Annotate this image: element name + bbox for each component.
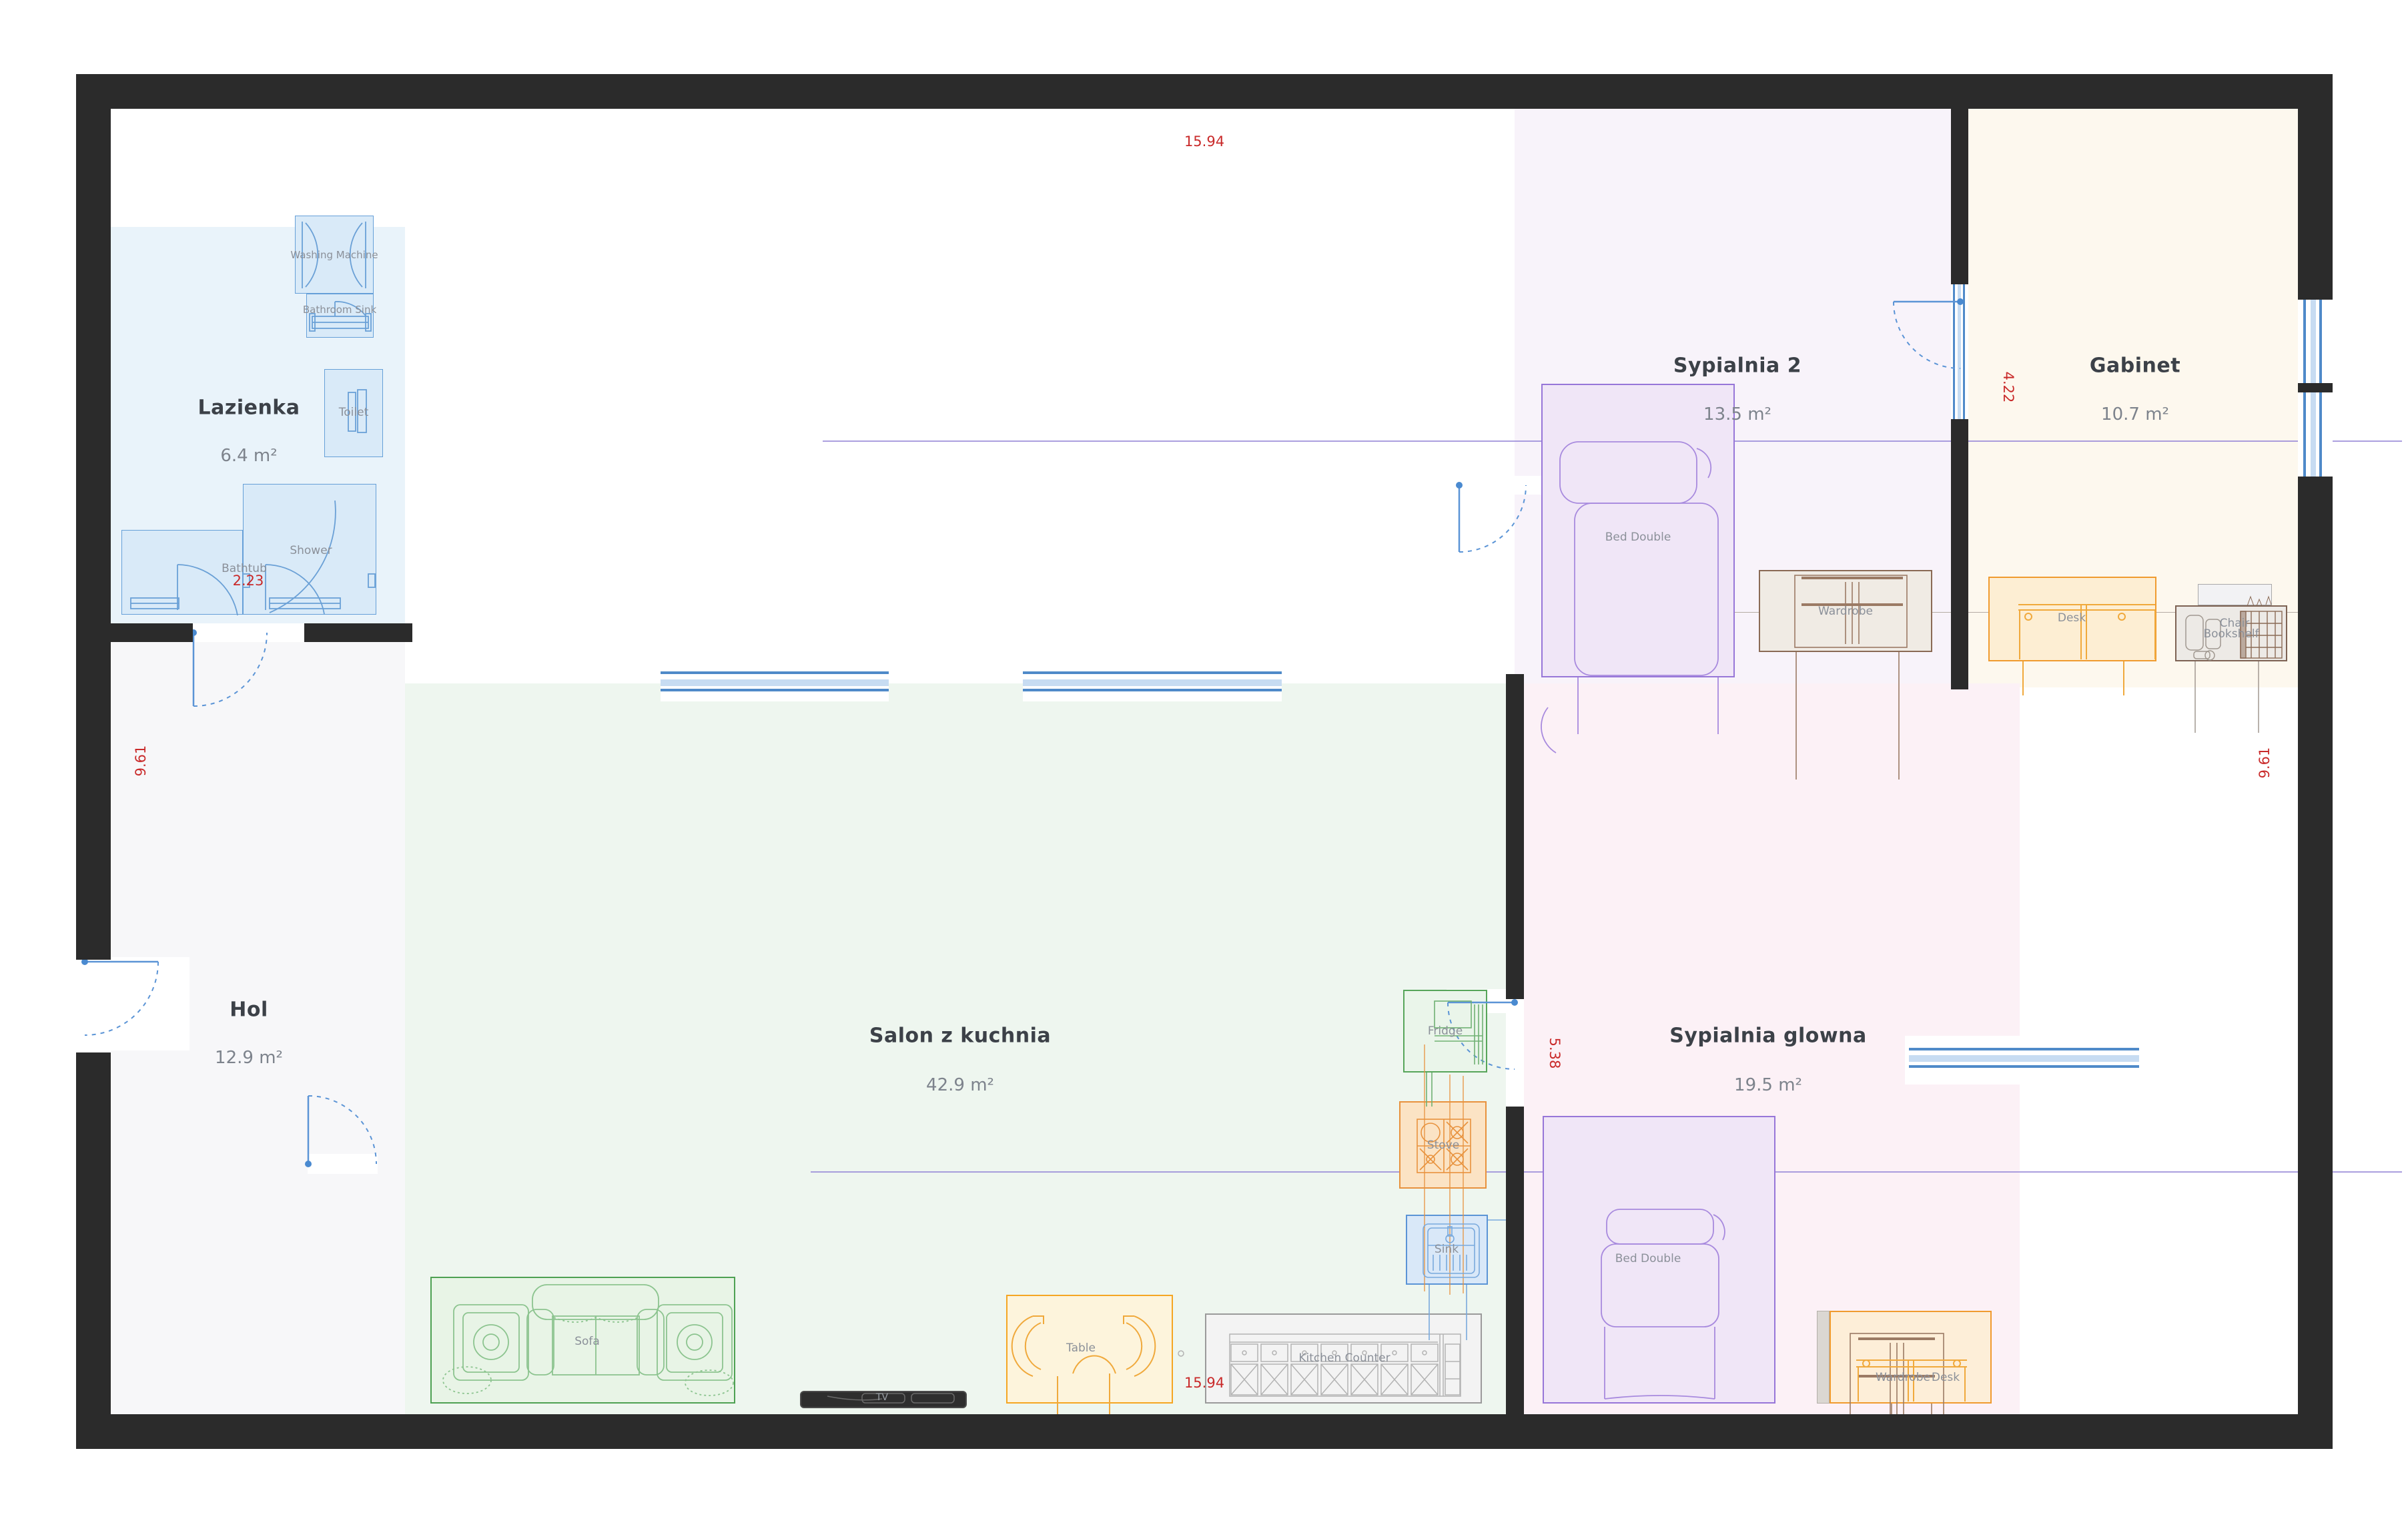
chair-gabinet[interactable] [2198,584,2272,605]
wall-bottom [76,1414,2333,1449]
window-pane [661,679,889,686]
wall-lazienka-right [304,623,412,642]
label-sink: Sink [1435,1243,1459,1256]
wall-left-lower [76,1052,111,1449]
room-title-lazienka: Lazienka [197,396,300,420]
wall-right-lower [2298,477,2333,1449]
window-pane [1909,1048,2139,1050]
window-pane [1963,284,1965,419]
bathroom-sink[interactable] [306,294,374,338]
dimension-lazienka: 2.23 [233,573,264,589]
wall-sypialnia2-gabinet-lower [1951,419,1968,689]
dimension-top: 15.94 [1184,133,1224,149]
wall-salon-sypialnia-lower [1506,1107,1524,1414]
window-pane [1023,679,1282,686]
floor-plan: Lazienka 6.4 m² Hol 12.9 m² Salon z kuch… [0,0,2408,1525]
window-pane [1023,689,1282,691]
dimension-salon: 5.38 [1547,1038,1563,1069]
label-fridge: Fridge [1428,1024,1463,1038]
room-area-gabinet: 10.7 m² [2101,404,2169,424]
wall-right-upper [2298,74,2333,300]
wardrobe-desk-combo[interactable] [1830,1311,1992,1404]
room-area-lazienka: 6.4 m² [220,446,277,466]
wardrobe-side-panel[interactable] [1817,1311,1830,1404]
window-pane [1958,284,1961,419]
label-desk-glowna: Desk [1932,1371,1960,1384]
window-pane [1953,284,1955,419]
window-sypialnia2-gabinet[interactable] [1951,284,1968,419]
label-table: Table [1066,1341,1096,1355]
dimension-bottom: 15.94 [1184,1375,1224,1391]
dimension-left: 9.61 [133,745,149,777]
window-pane [1023,671,1282,674]
window-salon-right[interactable] [1023,670,1282,701]
door-opening-hol-salon [308,1154,378,1174]
room-area-sypialnia-glowna: 19.5 m² [1734,1075,1802,1095]
window-salon-left[interactable] [661,670,889,701]
room-area-hol: 12.9 m² [215,1048,283,1068]
label-stove: Stove [1427,1139,1459,1152]
door-swath-entrance [111,957,189,1050]
label-kitchen-counter: Kitchen Counter [1298,1351,1390,1365]
label-bathroom-sink: Bathroom Sink [303,304,376,316]
label-tv: TV [876,1392,888,1403]
wall-lazienka-left [111,623,193,642]
window-pane [661,689,889,691]
room-title-salon: Salon z kuchnia [869,1024,1051,1048]
label-bed-double-glowna: Bed Double [1615,1252,1681,1265]
wall-sypialnia2-gabinet-upper [1951,109,1968,284]
dimension-gabinet: 4.22 [2000,372,2016,403]
room-title-sypialnia2: Sypialnia 2 [1673,354,1801,378]
window-pane [1909,1055,2139,1062]
label-toilet: Toilet [339,406,368,419]
label-sofa: Sofa [574,1335,600,1348]
room-area-salon: 42.9 m² [926,1075,994,1095]
label-washing-machine: Washing Machine [290,249,378,261]
wall-top [76,74,2333,109]
room-title-sypialnia-glowna: Sypialnia glowna [1669,1024,1866,1048]
label-bed-double-sypialnia2: Bed Double [1605,531,1671,544]
wall-right-window-stub [2298,383,2333,392]
label-bookshelf: Bookshelf [2203,627,2259,641]
dimension-right: 9.61 [2257,747,2273,779]
room-title-gabinet: Gabinet [2090,354,2180,378]
label-shower: Shower [290,544,332,557]
window-pane [661,671,889,674]
label-wardrobe-sypialnia2: Wardrobe [1818,605,1873,618]
room-area-sypialnia2: 13.5 m² [1703,404,1771,424]
wall-salon-sypialnia-upper [1506,674,1524,999]
room-title-hol: Hol [230,998,268,1022]
wall-left-upper [76,74,111,960]
window-sypialnia-glowna[interactable] [1905,1036,2195,1085]
label-wardrobe-glowna: Wardrobe [1876,1371,1930,1384]
label-desk-gabinet: Desk [2058,611,2086,625]
window-pane [1909,1065,2139,1068]
